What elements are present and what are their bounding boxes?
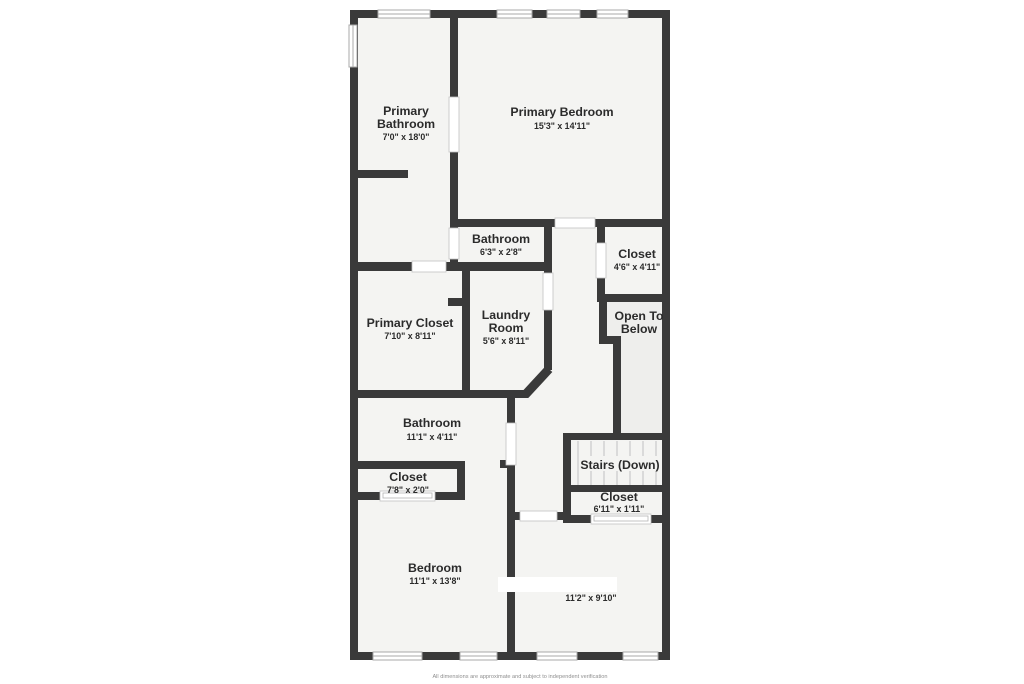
wall-segment (597, 294, 670, 302)
door-opening (506, 423, 516, 465)
room-name: Primary Bedroom (510, 105, 613, 119)
room-dims: 6'11" x 1'11" (594, 504, 645, 514)
wall-segment (350, 262, 552, 271)
room-name: Open To (615, 309, 664, 323)
room-name: Bathroom (403, 416, 461, 430)
room-dims: 15'3" x 14'11" (534, 121, 590, 131)
room-closet-middle: Closet 7'8" x 2'0" (387, 470, 429, 495)
floorplan-page: Primary Bathroom 7'0" x 18'0" Primary Be… (0, 0, 1024, 684)
wall-segment (662, 10, 670, 660)
room-name: Below (621, 322, 658, 336)
room-dims: 7'0" x 18'0" (383, 132, 430, 142)
room-primary-bathroom: Primary Bathroom 7'0" x 18'0" (377, 104, 435, 142)
door-opening (520, 511, 557, 521)
room-bedroom: Bedroom 11'1" x 13'8" (408, 561, 462, 586)
room-name: Stairs (Down) (580, 458, 659, 472)
room-name: Laundry (482, 308, 531, 322)
room-name: Closet (618, 247, 656, 261)
wall-segment (350, 390, 528, 398)
room-closet-stairs: Closet 6'11" x 1'11" (594, 490, 645, 514)
room-dims: 7'8" x 2'0" (387, 485, 429, 495)
room-name: Bathroom (377, 117, 435, 131)
disclaimer-text: All dimensions are approximate and subje… (432, 674, 607, 680)
sliding-door-panel (594, 516, 648, 521)
room-bathroom-middle: Bathroom 11'1" x 4'11" (403, 416, 461, 442)
room-laundry: Laundry Room 5'6" x 8'11" (482, 308, 531, 346)
door-opening (543, 273, 553, 310)
door-opening (449, 228, 459, 259)
room-name: Primary Closet (367, 316, 454, 330)
door-opening (412, 261, 446, 272)
room-dims: 11'1" x 13'8" (409, 576, 460, 586)
door-opening (555, 218, 595, 228)
room-dims: 7'10" x 8'11" (384, 331, 435, 341)
room-dims: 6'3" x 2'8" (480, 247, 522, 257)
room-dims: 5'6" x 8'11" (483, 336, 529, 346)
room-name: Bathroom (472, 232, 530, 246)
room-bathroom-small: Bathroom 6'3" x 2'8" (472, 232, 530, 257)
room-name: Closet (389, 470, 427, 484)
wall-segment (350, 461, 463, 469)
room-open-to-below: Open To Below (615, 309, 664, 336)
redacted-label-band (498, 577, 617, 592)
room-dims: 11'2" x 9'10" (565, 593, 616, 603)
door-opening (596, 243, 606, 278)
wall-segment (448, 298, 462, 306)
wall-segment (563, 433, 571, 523)
room-name: Closet (600, 490, 638, 504)
room-name: Primary (383, 104, 429, 118)
room-unlabeled: 11'2" x 9'10" (565, 593, 616, 603)
room-name: Bedroom (408, 561, 462, 575)
wall-segment (350, 10, 358, 660)
room-closet-upper: Closet 4'6" x 4'11" (614, 247, 660, 272)
room-dims: 11'1" x 4'11" (407, 432, 458, 442)
room-stairs: Stairs (Down) (580, 458, 659, 472)
wall-segment (613, 336, 621, 440)
floorplan-canvas: Primary Bathroom 7'0" x 18'0" Primary Be… (0, 0, 1024, 684)
door-opening (449, 97, 459, 152)
room-dims: 4'6" x 4'11" (614, 262, 660, 272)
wall-segment (462, 262, 470, 398)
room-name: Room (489, 321, 524, 335)
wall-segment (353, 170, 408, 178)
